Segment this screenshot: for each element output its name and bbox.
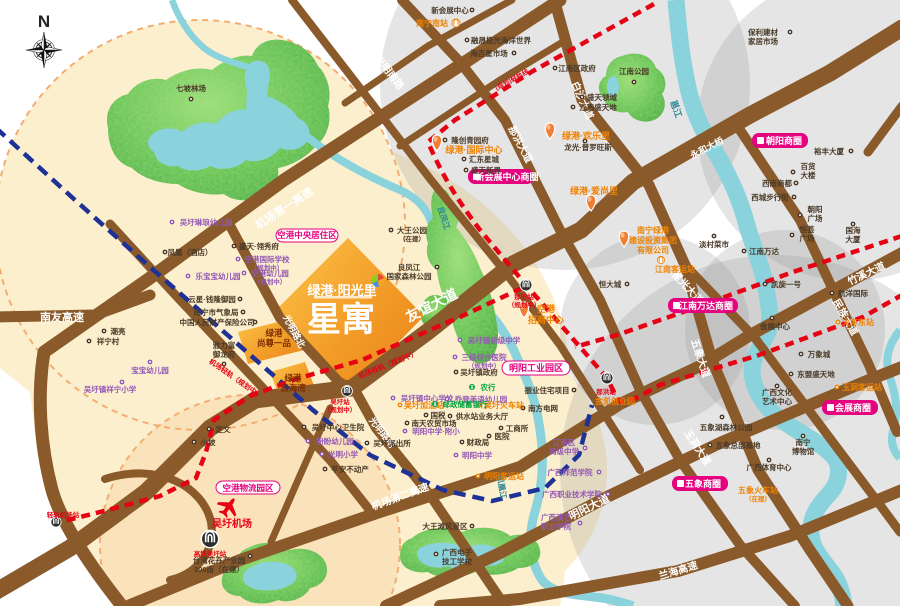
svg-text:职业学院: 职业学院 xyxy=(541,521,571,531)
svg-text:绿港·爱尚里: 绿港·爱尚里 xyxy=(570,185,618,196)
svg-text:吴圩火车站: 吴圩火车站 xyxy=(484,400,524,410)
svg-text:大厦: 大厦 xyxy=(846,234,861,244)
svg-text:金凯创业园: 金凯创业园 xyxy=(594,396,635,406)
svg-text:农行: 农行 xyxy=(480,382,496,392)
svg-text:江南盛天地: 江南盛天地 xyxy=(579,102,617,112)
svg-text:江南公园: 江南公园 xyxy=(619,66,649,76)
svg-text:明阳客运站: 明阳客运站 xyxy=(484,471,524,481)
svg-text:绿港·国际中心: 绿港·国际中心 xyxy=(446,144,503,155)
svg-text:西城步行街: 西城步行街 xyxy=(751,192,789,202)
svg-text:五象火车站: 五象火车站 xyxy=(738,485,778,495)
svg-text:绿港·阳光里: 绿港·阳光里 xyxy=(307,283,376,298)
svg-text:那洪站: 那洪站 xyxy=(596,387,616,396)
svg-text:三级综合医院: 三级综合医院 xyxy=(462,352,507,362)
svg-text:空港物流园区: 空港物流园区 xyxy=(222,483,274,493)
svg-text:小坡: 小坡 xyxy=(201,437,216,447)
svg-text:邮政储蓄银行: 邮政储蓄银行 xyxy=(443,399,488,409)
svg-text:盛天·翎秀府: 盛天·翎秀府 xyxy=(239,241,279,251)
svg-text:潮亮: 潮亮 xyxy=(111,326,126,336)
svg-text:祥宁村: 祥宁村 xyxy=(97,336,120,346)
svg-text:振业住宅项目: 振业住宅项目 xyxy=(525,385,570,395)
svg-text:淡村菜市: 淡村菜市 xyxy=(699,239,729,249)
svg-text:新会展中心: 新会展中心 xyxy=(431,5,469,15)
svg-text:万象城: 万象城 xyxy=(807,349,831,359)
svg-text:恒大城: 恒大城 xyxy=(599,279,622,289)
svg-text:吴圩派出所: 吴圩派出所 xyxy=(373,438,411,448)
svg-text:广西文化: 广西文化 xyxy=(762,387,792,397)
svg-text:N: N xyxy=(38,12,50,31)
svg-text:南宁绿港: 南宁绿港 xyxy=(637,225,670,235)
svg-text:吴圩加油站: 吴圩加油站 xyxy=(404,400,444,410)
svg-text:百货: 百货 xyxy=(801,161,816,171)
svg-text:广西电子: 广西电子 xyxy=(442,547,472,557)
svg-text:盛天新界: 盛天新界 xyxy=(471,165,501,175)
svg-text:明阳中学: 明阳中学 xyxy=(462,450,492,460)
svg-text:吴圩镇初级中学: 吴圩镇初级中学 xyxy=(468,335,521,345)
svg-text:轻轨机场站: 轻轨机场站 xyxy=(47,510,80,519)
svg-text:（规划中）: （规划中） xyxy=(468,361,501,370)
svg-text:融晟极光海洋世界: 融晟极光海洋世界 xyxy=(471,35,531,45)
svg-text:中国人民财产保险公司: 中国人民财产保险公司 xyxy=(180,317,255,327)
svg-text:明阳工业园区: 明阳工业园区 xyxy=(509,362,563,373)
svg-text:凤凰（酒店）: 凤凰（酒店） xyxy=(168,247,213,257)
svg-text:大王滩风景区: 大王滩风景区 xyxy=(423,521,468,531)
svg-text:江南万达: 江南万达 xyxy=(749,246,779,256)
svg-text:广场: 广场 xyxy=(800,233,815,243)
svg-text:平安不动产: 平安不动产 xyxy=(331,464,369,474)
svg-text:云海湾: 云海湾 xyxy=(280,383,306,393)
svg-text:朝阳商圈: 朝阳商圈 xyxy=(766,135,802,146)
svg-text:凯旋一号: 凯旋一号 xyxy=(771,279,801,289)
svg-text:御龙府: 御龙府 xyxy=(212,349,236,359)
svg-text:会展中心: 会展中心 xyxy=(760,321,790,331)
svg-text:吴圩站: 吴圩站 xyxy=(330,397,350,406)
svg-text:南宁市气象局: 南宁市气象局 xyxy=(194,307,239,317)
svg-text:光明小学: 光明小学 xyxy=(327,449,358,459)
svg-text:大楼: 大楼 xyxy=(801,170,816,180)
svg-text:（在建）: （在建） xyxy=(745,494,771,503)
svg-text:尚尊一品: 尚尊一品 xyxy=(257,338,292,348)
svg-text:汇东星城: 汇东星城 xyxy=(469,154,499,164)
svg-text:朝阳: 朝阳 xyxy=(808,204,823,214)
svg-text:高铁吴圩站: 高铁吴圩站 xyxy=(194,549,227,558)
svg-text:家居市场: 家居市场 xyxy=(748,36,778,46)
svg-text:东盟盛天地: 东盟盛天地 xyxy=(797,369,835,379)
svg-text:空港幼儿园: 空港幼儿园 xyxy=(251,268,289,278)
svg-text:雅力富: 雅力富 xyxy=(213,340,236,350)
svg-text:会展商圈: 会展商圈 xyxy=(835,402,871,413)
svg-text:国家森林公园: 国家森林公园 xyxy=(387,271,432,281)
svg-text:西南商都: 西南商都 xyxy=(762,178,792,188)
svg-text:定文: 定文 xyxy=(216,424,231,434)
svg-text:云星·钱隆御园: 云星·钱隆御园 xyxy=(188,294,236,304)
svg-text:广西师范学院: 广西师范学院 xyxy=(548,467,593,477)
svg-text:（规划中）: （规划中） xyxy=(508,300,541,309)
svg-text:高级中学: 高级中学 xyxy=(549,446,579,456)
svg-text:盼盼幼儿园: 盼盼幼儿园 xyxy=(316,436,354,446)
svg-text:江南客运站: 江南客运站 xyxy=(655,264,695,274)
svg-text:盛天领域: 盛天领域 xyxy=(587,92,617,102)
svg-text:吴圩机场: 吴圩机场 xyxy=(212,517,252,530)
svg-text:宝宝幼儿园: 宝宝幼儿园 xyxy=(131,365,169,375)
svg-text:300亩（在建）: 300亩（在建） xyxy=(194,564,244,574)
svg-text:龙光·普罗旺斯: 龙光·普罗旺斯 xyxy=(564,142,612,152)
svg-text:¥: ¥ xyxy=(471,385,474,391)
svg-text:五象总部基地: 五象总部基地 xyxy=(716,440,761,450)
svg-text:建设投资集团: 建设投资集团 xyxy=(628,235,677,245)
svg-text:（规划中）: （规划中） xyxy=(254,277,287,286)
svg-text:南宁: 南宁 xyxy=(796,437,811,447)
svg-text:五象湖森林公园: 五象湖森林公园 xyxy=(700,422,753,432)
svg-text:供水站业务大厅: 供水站业务大厅 xyxy=(455,411,509,421)
svg-text:隆创青园府: 隆创青园府 xyxy=(451,135,489,145)
svg-text:广西职业技术学院: 广西职业技术学院 xyxy=(542,489,602,499)
svg-text:招商中心: 招商中心 xyxy=(528,314,564,325)
svg-text:江南区政府: 江南区政府 xyxy=(558,63,596,73)
svg-text:有限公司: 有限公司 xyxy=(637,245,669,255)
svg-text:乐宝宝幼儿园: 乐宝宝幼儿园 xyxy=(196,271,241,281)
svg-text:航洋国际: 航洋国际 xyxy=(838,288,868,298)
svg-text:（在建）: （在建） xyxy=(399,234,425,243)
svg-text:七坡林场: 七坡林场 xyxy=(176,83,206,93)
svg-text:广场: 广场 xyxy=(808,213,823,223)
svg-text:国海: 国海 xyxy=(846,225,861,235)
svg-text:江南区: 江南区 xyxy=(553,437,576,447)
svg-text:吴圩琳琅幼儿园: 吴圩琳琅幼儿园 xyxy=(180,217,233,227)
svg-text:玉洞客运站: 玉洞客运站 xyxy=(842,382,882,392)
svg-text:吴圩镇祥宁小学: 吴圩镇祥宁小学 xyxy=(84,384,137,394)
svg-text:五象商圈: 五象商圈 xyxy=(685,478,721,489)
svg-text:医院: 医院 xyxy=(495,431,510,441)
svg-text:财政局: 财政局 xyxy=(466,437,490,447)
svg-text:博物馆: 博物馆 xyxy=(792,446,815,456)
svg-text:绿港: 绿港 xyxy=(284,373,302,383)
svg-text:艺术中心: 艺术中心 xyxy=(762,396,792,406)
svg-text:南方电网: 南方电网 xyxy=(528,403,558,413)
svg-text:良凤江: 良凤江 xyxy=(398,262,421,272)
svg-text:星寓: 星寓 xyxy=(307,301,375,339)
svg-text:大王公园: 大王公园 xyxy=(397,225,427,235)
svg-text:技工学校: 技工学校 xyxy=(442,556,472,566)
svg-text:江南万达商圈: 江南万达商圈 xyxy=(679,300,733,311)
svg-text:恒荟: 恒荟 xyxy=(800,224,815,234)
svg-text:空港国际学校: 空港国际学校 xyxy=(245,254,290,264)
svg-text:绿港: 绿港 xyxy=(265,328,283,338)
svg-text:吴圩中心卫生院: 吴圩中心卫生院 xyxy=(312,422,365,432)
svg-text:保利建材: 保利建材 xyxy=(747,27,778,37)
svg-text:南友高速: 南友高速 xyxy=(40,310,84,324)
svg-text:火车东站: 火车东站 xyxy=(842,317,874,327)
svg-text:那历站: 那历站 xyxy=(514,292,534,301)
svg-text:广西演艺: 广西演艺 xyxy=(541,512,571,522)
svg-text:南宁南站: 南宁南站 xyxy=(416,18,448,28)
svg-text:裕丰大厦: 裕丰大厦 xyxy=(813,146,844,156)
svg-text:明阳中学·附小: 明阳中学·附小 xyxy=(412,426,460,436)
svg-text:（规划中）: （规划中） xyxy=(324,405,357,414)
svg-text:绿港·欢乐里: 绿港·欢乐里 xyxy=(562,130,610,141)
svg-text:海吉星市场: 海吉星市场 xyxy=(470,48,508,58)
svg-text:空港中央居住区: 空港中央居住区 xyxy=(277,230,337,240)
svg-text:¥: ¥ xyxy=(434,402,437,408)
svg-text:广西体育中心: 广西体育中心 xyxy=(747,462,792,472)
